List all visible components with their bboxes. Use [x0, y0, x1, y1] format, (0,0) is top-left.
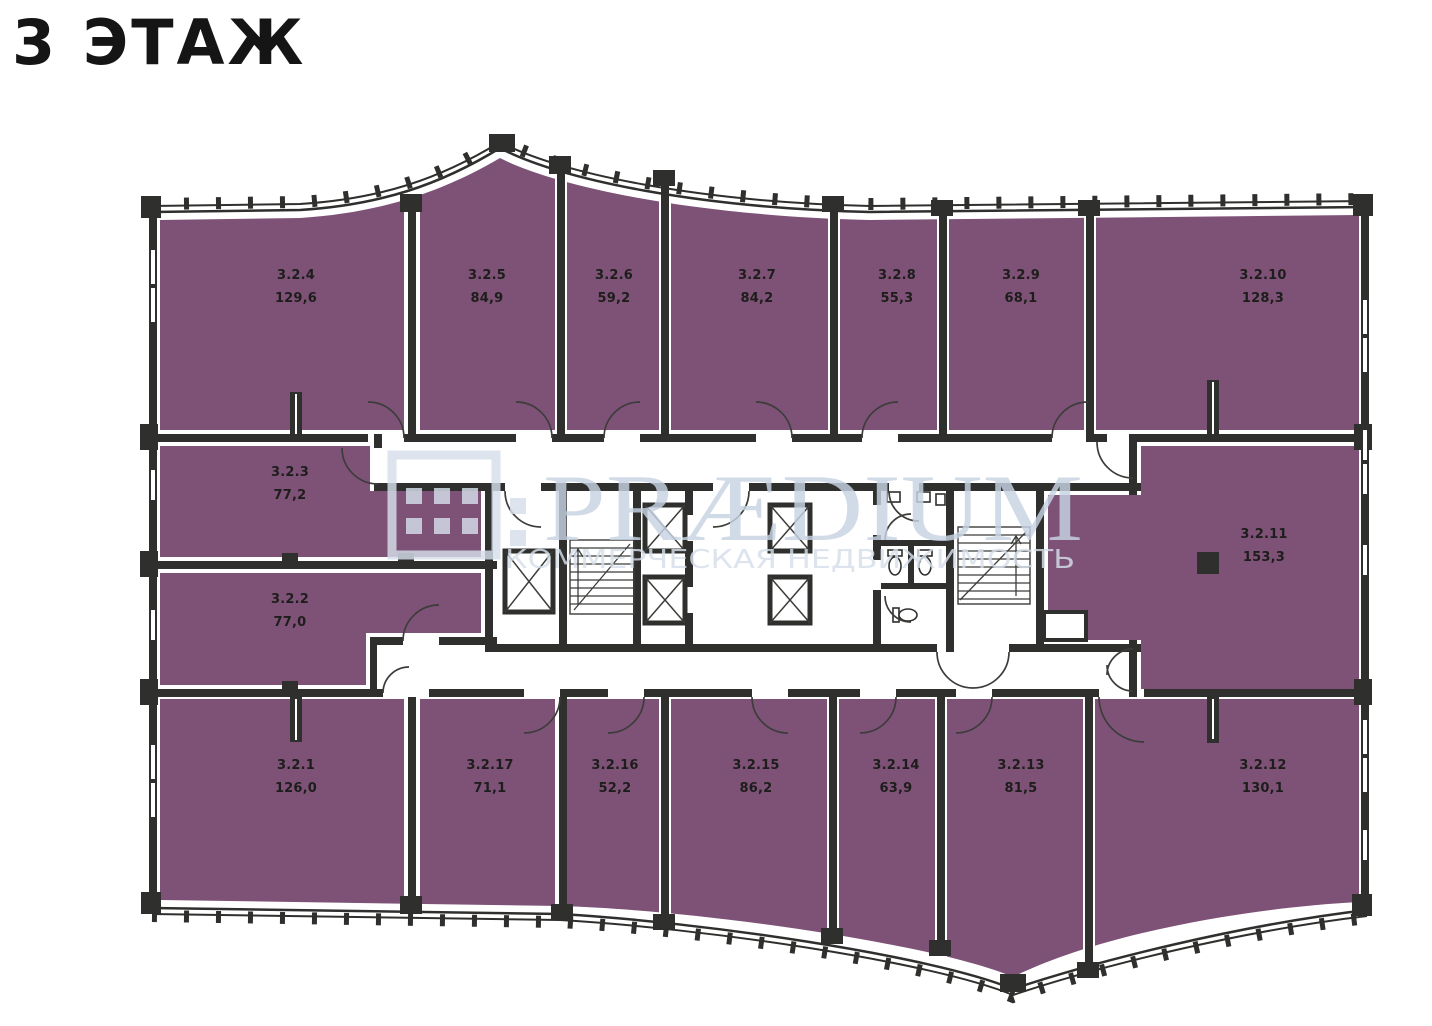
room-3-2-1[interactable]: [156, 699, 404, 998]
room-label-3-2-17: 3.2.1771,1: [466, 754, 513, 800]
room-3-2-17[interactable]: [420, 699, 555, 998]
floor-plan-page: PRÆDIUM КОММЕРЧЕСКАЯ НЕДВИЖИМОСТЬ 3 ЭТАЖ…: [0, 0, 1432, 1026]
room-label-3-2-16: 3.2.1652,2: [591, 754, 638, 800]
room-label-3-2-8: 3.2.855,3: [878, 264, 916, 310]
watermark: PRÆDIUM КОММЕРЧЕСКАЯ НЕДВИЖИМОСТЬ: [392, 455, 1083, 575]
page-title: 3 ЭТАЖ: [12, 6, 306, 79]
room-label-3-2-7: 3.2.784,2: [738, 264, 776, 310]
room-3-2-2[interactable]: [156, 573, 481, 685]
room-3-2-10[interactable]: [1096, 140, 1360, 430]
room-label-3-2-1: 3.2.1126,0: [275, 754, 317, 800]
room-3-2-13[interactable]: [947, 699, 1083, 998]
column: [282, 553, 298, 569]
room-label-3-2-9: 3.2.968,1: [1002, 264, 1040, 310]
door-arc: [937, 652, 973, 688]
column: [1197, 552, 1219, 574]
room-label-3-2-2: 3.2.277,0: [271, 588, 309, 634]
niche: [1044, 612, 1086, 640]
watermark-tagline: КОММЕРЧЕСКАЯ НЕДВИЖИМОСТЬ: [505, 545, 1075, 575]
room-label-3-2-3: 3.2.377,2: [271, 461, 309, 507]
room-label-3-2-10: 3.2.10128,3: [1239, 264, 1286, 310]
room-label-3-2-14: 3.2.1463,9: [872, 754, 919, 800]
room-3-2-3[interactable]: [156, 446, 481, 557]
room-3-2-15[interactable]: [671, 699, 827, 998]
column: [282, 681, 298, 697]
room-label-3-2-12: 3.2.12130,1: [1239, 754, 1286, 800]
room-3-2-14[interactable]: [839, 699, 935, 998]
room-label-3-2-13: 3.2.1381,5: [997, 754, 1044, 800]
room-label-3-2-4: 3.2.4129,6: [275, 264, 317, 310]
door-arc: [973, 652, 1009, 688]
door-arc: [1097, 442, 1133, 478]
room-label-3-2-15: 3.2.1586,2: [732, 754, 779, 800]
room-label-3-2-6: 3.2.659,2: [595, 264, 633, 310]
floor-plan-canvas: PRÆDIUM КОММЕРЧЕСКАЯ НЕДВИЖИМОСТЬ: [0, 0, 1432, 1026]
door-arc: [383, 667, 409, 693]
room-3-2-16[interactable]: [567, 699, 659, 998]
window-mullions-top: [152, 140, 1367, 204]
room-label-3-2-5: 3.2.584,9: [468, 264, 506, 310]
room-label-3-2-11: 3.2.11153,3: [1240, 523, 1287, 569]
window-mullions-bottom: [152, 916, 1367, 997]
